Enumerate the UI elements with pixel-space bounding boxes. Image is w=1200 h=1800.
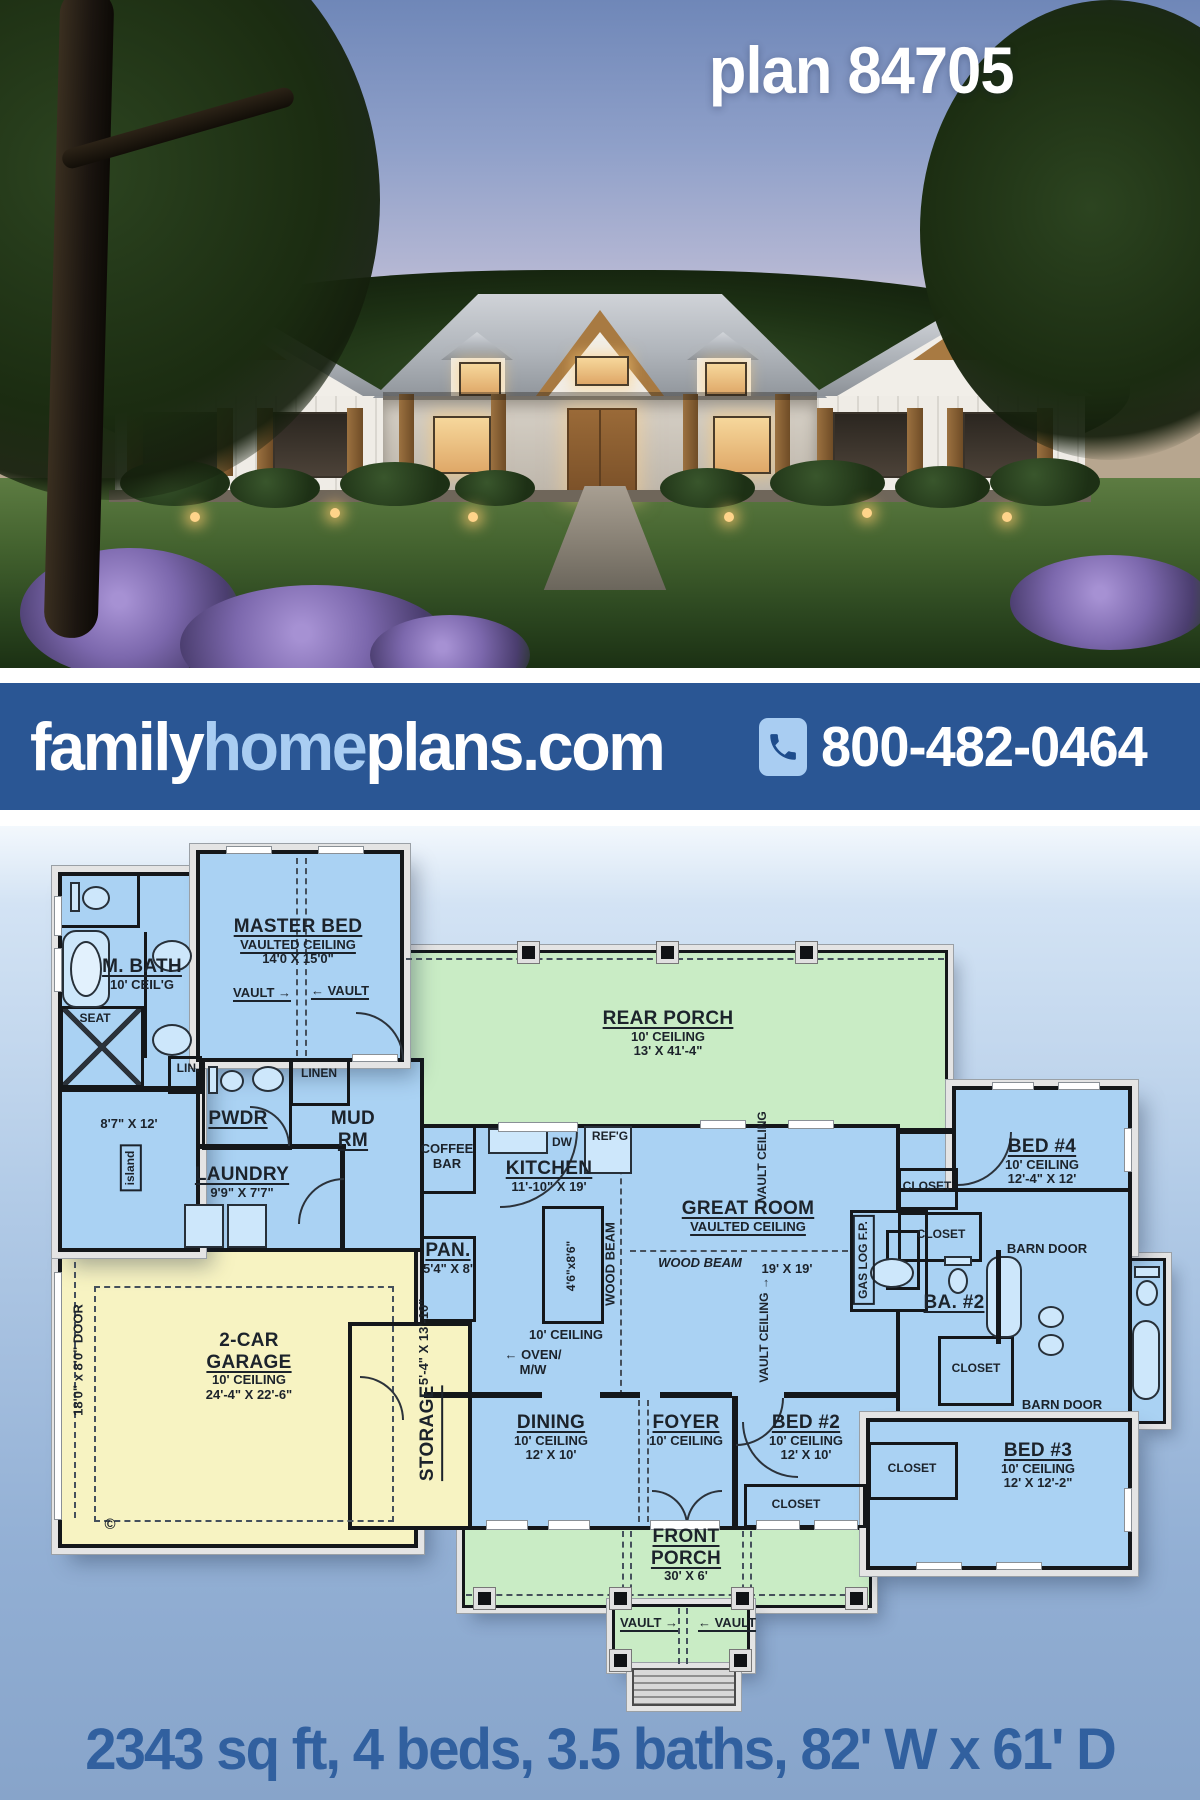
porch-edge-dashed-line [406,958,944,960]
label-kitchen-ceiling: 10' CEILING [529,1328,603,1343]
landscape-light [724,512,734,522]
washer [184,1204,224,1248]
porch-post [661,946,674,959]
label-bed2: BED #210' CEILING12' X 10' [769,1412,843,1463]
label-refg: REF'G [592,1130,628,1144]
shrub [660,468,755,508]
window-marker [996,1562,1042,1570]
phone-contact[interactable]: 800-482-0464 [759,714,1164,780]
label-vault-ceiling-1: ← VAULT CEILING [756,1111,770,1217]
house-photo: plan 84705 [0,0,1200,668]
porch-post [850,1592,863,1605]
label-m-bath: M. BATH10' CEIL'G [102,956,182,992]
label-coffee-bar: COFFEEBAR [421,1142,474,1172]
porch-dashed-line [678,1608,680,1664]
label-dining: DINING10' CEILING12' X 10' [514,1412,588,1463]
dormer-window [459,362,501,396]
label-dw: DW [552,1136,572,1150]
porch-post [734,1654,747,1667]
sink [252,1066,284,1092]
label-vault-porch-right: ← VAULT [698,1616,756,1631]
toilet-bowl [220,1070,244,1092]
label-ba2: BA. #2 [924,1292,985,1314]
toilet [944,1256,972,1266]
label-copyright: © [104,1516,115,1533]
label-lin: LIN. [177,1062,200,1076]
label-garage-door: 18'0" x 8'0" DOOR [72,1304,87,1416]
wall-segment [996,1250,1001,1344]
window-marker [756,1520,800,1530]
label-closet-d: CLOSET [888,1462,937,1476]
porch-dashed-line [466,1594,866,1596]
front-door-split [599,408,601,494]
label-foyer: FOYER10' CEILING [649,1412,723,1448]
label-vault-master-left: VAULT → [233,986,291,1001]
toilet [208,1066,218,1094]
label-closet-dim: 8'7" X 12' [100,1117,157,1132]
label-vault-master-right: ← VAULT [311,984,369,999]
label-laundry: LAUNDRY9'9" X 7'7" [195,1164,289,1200]
window-marker [54,896,62,936]
garage-door-opening [54,1272,62,1520]
label-closet-e: CLOSET [772,1498,821,1512]
shrub [455,470,535,506]
label-rear-porch: REAR PORCH10' CEILING13' X 41'-4" [603,1008,734,1059]
window-marker [226,846,272,854]
label-closet-b: CLOSET [917,1228,966,1242]
wall-segment [896,1128,956,1134]
label-great-dim: 19' X 19' [762,1262,813,1277]
landscape-light [330,508,340,518]
label-barn-door-2: BARN DOOR [1022,1398,1102,1413]
toilet-bowl [948,1268,968,1294]
window-marker [486,1520,528,1530]
toilet-bowl [82,886,110,910]
label-bed3: BED #310' CEILING12' X 12'-2" [1001,1440,1075,1491]
porch-dashed-line [630,1531,632,1601]
wall-segment [144,932,147,1058]
porch-post [522,946,535,959]
label-vault-porch-left: VAULT → [620,1616,678,1631]
sink [1038,1334,1064,1356]
porch-eave-shadow [383,392,817,400]
window-marker [54,948,62,992]
label-kitchen: KITCHEN11'-10" X 19' [506,1158,593,1194]
garage-ceiling-dashed [94,1286,394,1522]
label-barn-door-1: BARN DOOR [1007,1242,1087,1257]
label-seat: SEAT [79,1012,110,1026]
shrub [770,460,885,506]
shrub [340,462,450,506]
landscape-light [468,512,478,522]
window-marker [916,1562,962,1570]
front-porch-entry [612,1604,750,1668]
porch-dashed-line [750,1531,752,1601]
plan-number-title: plan 84705 [709,32,1014,108]
label-bed4: BED #410' CEILING12'-4" X 12' [1005,1136,1079,1187]
label-pan: PAN.5'4" X 8' [423,1240,473,1276]
lavender-bush [1010,555,1200,650]
label-wood-beam-h: WOOD BEAM [658,1256,742,1271]
window-marker [1124,1488,1132,1532]
logo-home: home [202,709,365,785]
brand-banner: familyhomeplans.com 800-482-0464 [0,683,1200,810]
toilet-bowl [1136,1280,1158,1306]
label-closet-c: CLOSET [952,1362,1001,1376]
porch-window-right [713,416,771,474]
wall-segment [784,1392,900,1398]
shrub [895,466,990,508]
window-marker [788,1120,834,1129]
porch-dashed-line [742,1531,744,1601]
porch-dashed-line [686,1608,688,1664]
front-steps [632,1668,736,1706]
porch-post [614,1654,627,1667]
bathtub-basin [70,941,102,997]
label-island: island [120,1145,142,1192]
label-front-porch: FRONTPORCH30' X 6' [651,1526,721,1584]
foyer-dashed-line [638,1400,640,1522]
window-shutter [907,408,923,476]
toilet [1134,1266,1160,1278]
label-closet-a: CLOSET [903,1180,952,1194]
shrub [990,458,1100,506]
landscape-light [1002,512,1012,522]
wall-segment [660,1392,732,1398]
dryer [227,1204,267,1248]
label-wood-beam-v: WOOD BEAM [604,1222,619,1306]
window-marker [318,846,364,854]
door-opening [498,1122,578,1132]
porch-post [736,1592,749,1605]
site-logo[interactable]: familyhomeplans.com [30,708,663,786]
phone-number: 800-482-0464 [821,714,1147,780]
sink [870,1258,914,1288]
landscape-light [190,512,200,522]
porch-post [478,1592,491,1605]
entry-gable-window [575,356,629,386]
label-pwdr: PWDR [208,1108,267,1130]
window-marker [1058,1082,1100,1090]
porch-post [800,946,813,959]
sink [1038,1306,1064,1328]
bathtub [1132,1320,1160,1400]
porch-dashed-line [622,1531,624,1601]
toilet [70,882,80,912]
beam-dashed-line [630,1250,848,1252]
landscape-light [862,508,872,518]
window-marker [548,1520,590,1530]
stats-bar: 2343 sq ft, 4 beds, 3.5 baths, 82' W x 6… [18,1718,1182,1782]
wall-segment [424,1392,542,1398]
dormer-window [705,362,747,396]
logo-plans: plans.com [365,709,663,785]
window-marker [814,1520,858,1530]
phone-handset-icon [759,718,807,776]
wall-segment [58,1086,200,1092]
shrub [230,468,320,508]
label-linen: LINEN [301,1067,337,1081]
main-living-block [420,1124,900,1530]
front-door [567,408,637,498]
label-vault-ceiling-2: VAULT CEILING → [758,1277,772,1383]
label-oven-mw: ← OVEN/M/W [504,1348,561,1378]
logo-family: family [30,709,202,785]
label-master-bed: MASTER BEDVAULTED CEILING14'0 X 15'0" [234,916,363,967]
label-island-dim: 4'6"x8'6" [565,1241,579,1291]
label-great-room: GREAT ROOMVAULTED CEILING [682,1198,814,1234]
window-marker [700,1120,746,1129]
label-gas-log: GAS LOG F.P. [853,1215,875,1305]
porch-window-left [433,416,491,474]
sink [152,1024,192,1056]
bathtub [986,1256,1022,1338]
door-opening [352,1054,398,1062]
label-mud-rm: MUDRM [331,1108,375,1151]
label-garage: 2-CARGARAGE10' CEILING24'-4" X 22'-6" [206,1330,292,1403]
window-marker [1124,1128,1132,1172]
stats-text: 2343 sq ft, 4 beds, 3.5 baths, 82' W x 6… [85,1717,1115,1782]
wall-segment [600,1392,640,1398]
porch-post [614,1592,627,1605]
label-storage: STORAGE5'-4" X 13'-10" [417,1299,439,1481]
window-marker [992,1082,1034,1090]
